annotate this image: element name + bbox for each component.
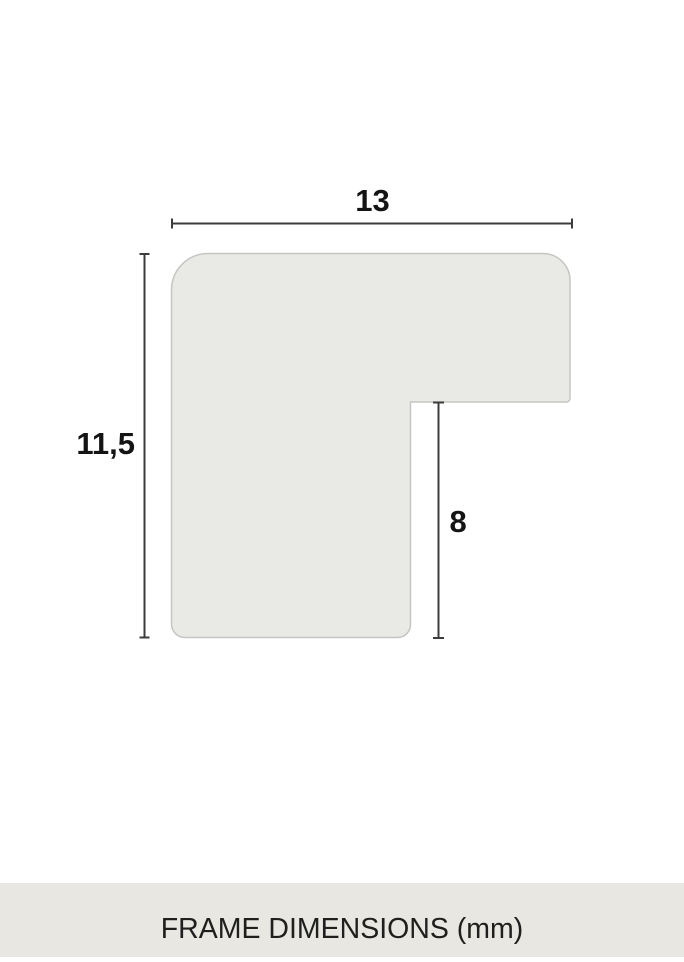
svg-text:8: 8 xyxy=(450,504,467,539)
svg-text:11,5: 11,5 xyxy=(76,426,135,461)
svg-text:13: 13 xyxy=(355,183,389,218)
svg-text:FRAME DIMENSIONS (mm): FRAME DIMENSIONS (mm) xyxy=(161,913,524,945)
